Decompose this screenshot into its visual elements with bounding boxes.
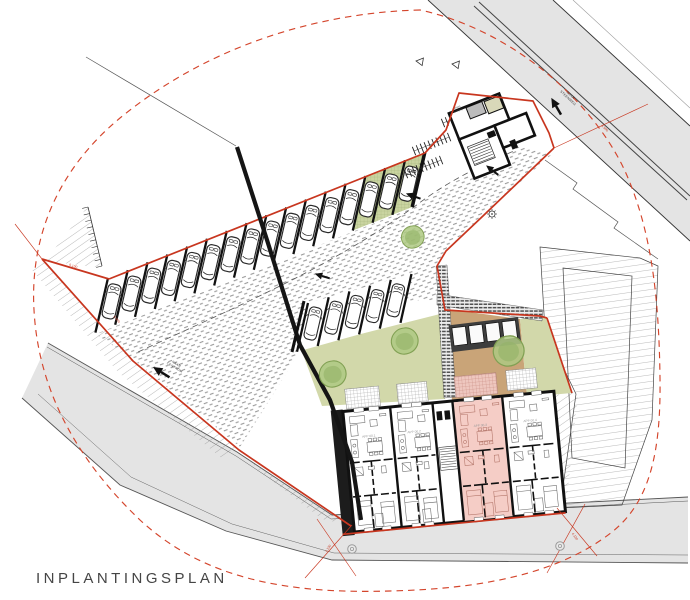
garden-shed xyxy=(452,326,468,346)
terrace-unit-3 xyxy=(454,373,498,398)
site-plan-drawing: fietsen berging APP 00.1APP 00.2APP 00.3… xyxy=(0,0,690,600)
manhole-icon xyxy=(348,545,357,554)
plan-title: INPLANTINGSPLAN xyxy=(36,570,228,587)
tree-icon xyxy=(401,226,424,248)
manhole-icon xyxy=(556,542,565,551)
terrace-unit-1 xyxy=(345,386,381,409)
garden-shed xyxy=(469,324,485,344)
bike-rack-row xyxy=(412,133,450,155)
dimension-line xyxy=(15,224,42,259)
north-rosette-icon xyxy=(487,209,497,219)
road-marking-triangle xyxy=(416,58,426,67)
tree-icon xyxy=(319,361,346,387)
tree-icon xyxy=(493,336,524,366)
terrace-unit-4 xyxy=(506,368,538,391)
terrace-unit-2 xyxy=(396,381,428,404)
site-plan-page: fietsen berging APP 00.1APP 00.2APP 00.3… xyxy=(0,0,690,600)
garden-shed xyxy=(485,322,501,342)
tree-icon xyxy=(391,328,418,354)
road-marking-triangle xyxy=(452,61,462,70)
